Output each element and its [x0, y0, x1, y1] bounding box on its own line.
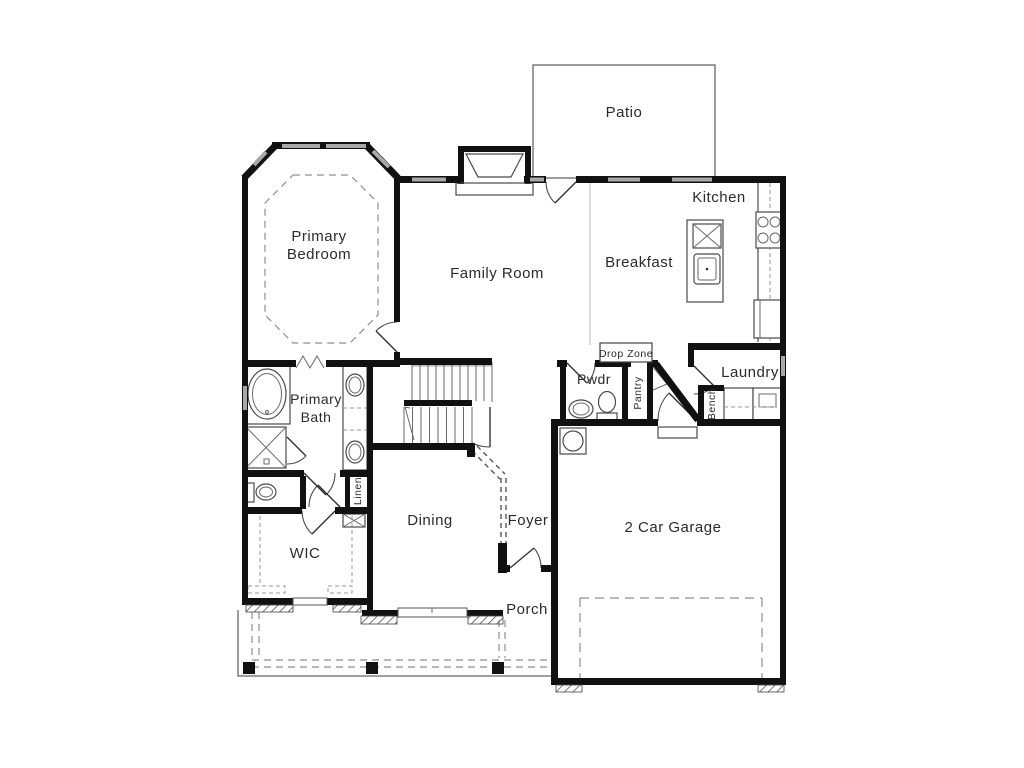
range-cooktop [756, 212, 782, 248]
washer [724, 388, 753, 420]
drop-zone-label: Drop Zone [599, 348, 653, 360]
pantry-label: Pantry [632, 376, 644, 410]
primary-bath-label-line2: Bath [301, 409, 332, 425]
powder-label: Pwdr [577, 371, 611, 387]
garage-label: 2 Car Garage [625, 519, 722, 536]
primary-bedroom-label-line2: Bedroom [287, 246, 351, 263]
double-vanity [343, 365, 367, 470]
family-room-window [412, 178, 446, 182]
foyer-label: Foyer [508, 512, 549, 529]
patio-outline [533, 65, 715, 178]
patio-label: Patio [606, 104, 643, 121]
bath-window [243, 386, 247, 410]
bedroom-door [376, 331, 397, 352]
primary-bedroom-label-line1: Primary [291, 228, 346, 245]
garage-door-dashed [580, 598, 762, 678]
toilet-primary [245, 483, 276, 502]
kitchen-window [672, 178, 712, 182]
floorplan-drawing: Patio Kitchen Breakfast Family Room Prim… [0, 0, 1024, 768]
wic-door [312, 511, 335, 534]
refrigerator [754, 300, 782, 338]
porch-label: Porch [506, 601, 548, 618]
chase-box [343, 514, 365, 527]
bay-window-right [326, 144, 366, 148]
wic-label: WIC [290, 545, 321, 562]
bath-hall-door [318, 485, 340, 507]
porch-posts [243, 662, 504, 674]
bay-window-left [282, 144, 320, 148]
bathtub [244, 365, 290, 424]
linen-label: Linen [352, 477, 364, 505]
garage-entry-step [658, 427, 697, 438]
breakfast-label: Breakfast [605, 254, 673, 271]
windows [243, 144, 785, 617]
family-room-label: Family Room [450, 265, 544, 282]
dryer [753, 388, 782, 420]
water-heater [560, 428, 586, 454]
powder-sink [569, 400, 593, 418]
shower [246, 427, 306, 468]
wic-porch-window [293, 598, 327, 605]
breakfast-window [608, 178, 640, 182]
angled-walls [244, 146, 698, 420]
wall-break-zigzag [296, 356, 324, 368]
primary-bath-label-line1: Primary [290, 391, 342, 407]
fireplace [456, 146, 533, 195]
laundry-label: Laundry [721, 364, 779, 381]
floorplan-page: Patio Kitchen Breakfast Family Room Prim… [0, 0, 1024, 768]
toilet-powder [597, 392, 617, 423]
bench-label: Bench [706, 388, 718, 420]
front-door [510, 548, 534, 568]
patio-door [555, 182, 576, 203]
cased-opening-dashed [472, 446, 506, 543]
laundry-window [781, 356, 785, 376]
kitchen-island [687, 220, 723, 302]
bath-door [304, 473, 326, 495]
laundry-door [694, 366, 714, 386]
dining-label: Dining [407, 512, 453, 529]
family-room-window-2 [530, 178, 544, 182]
kitchen-label: Kitchen [692, 189, 746, 206]
